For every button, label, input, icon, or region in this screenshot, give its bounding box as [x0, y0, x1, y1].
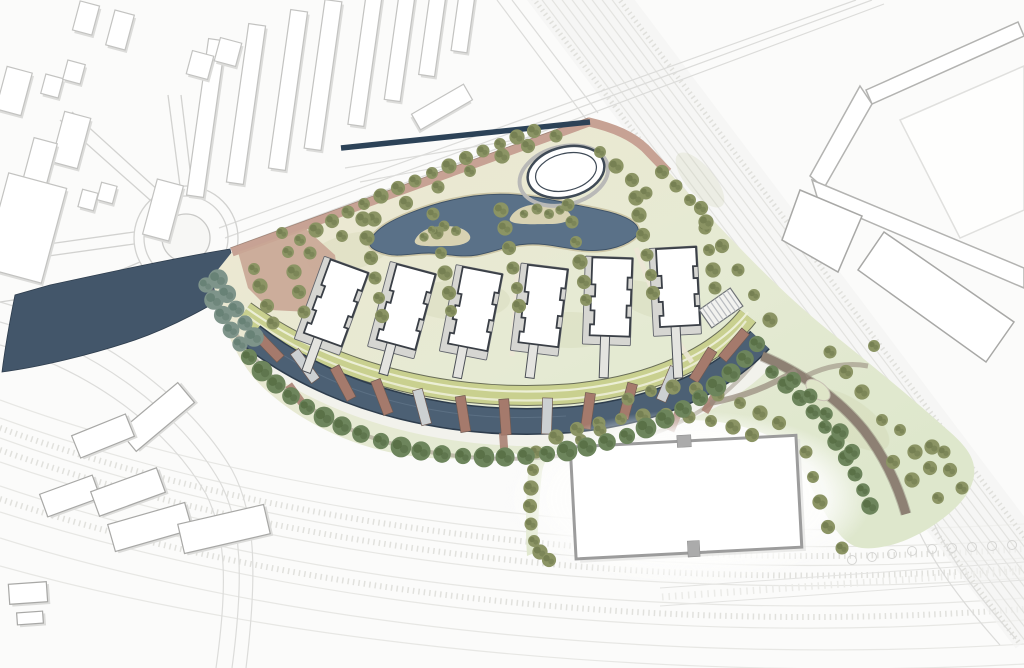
- tree-icon: [364, 251, 378, 265]
- tree-icon: [621, 392, 634, 405]
- tree-icon: [655, 165, 669, 179]
- canal-pier: [499, 399, 511, 436]
- tree-icon: [523, 499, 537, 513]
- tree-icon: [762, 312, 777, 327]
- tree-icon: [615, 413, 627, 425]
- tree-icon: [445, 305, 457, 317]
- tree-icon: [619, 428, 635, 444]
- tree-icon: [532, 204, 543, 215]
- tree-icon: [373, 433, 389, 449]
- tree-icon: [674, 400, 692, 418]
- tree-icon: [442, 286, 456, 300]
- tree-icon: [631, 207, 646, 222]
- warehouse-roof-notch: [677, 435, 692, 448]
- tree-icon: [821, 520, 835, 534]
- context-building: [268, 10, 307, 171]
- tree-icon: [373, 292, 385, 304]
- tree-icon: [502, 241, 516, 255]
- tree-icon: [749, 336, 765, 352]
- tree-icon: [336, 230, 348, 242]
- tree-icon: [252, 278, 267, 293]
- tree-icon: [408, 174, 421, 187]
- tree-icon: [512, 299, 526, 313]
- tree-icon: [228, 301, 245, 318]
- tree-icon: [923, 461, 937, 475]
- canal-pier: [541, 398, 552, 434]
- tree-icon: [241, 349, 257, 365]
- tree-icon: [772, 416, 786, 430]
- tree-icon: [861, 497, 878, 514]
- tree-icon: [359, 230, 374, 245]
- tree-icon: [645, 385, 657, 397]
- tree-icon: [266, 316, 279, 329]
- tree-icon: [636, 418, 657, 439]
- tree-icon: [807, 471, 819, 483]
- tree-icon: [419, 232, 428, 241]
- tree-icon: [435, 247, 447, 259]
- tree-icon: [248, 263, 260, 275]
- tree-icon: [441, 158, 456, 173]
- tree-icon: [694, 201, 708, 215]
- tree-icon: [955, 481, 968, 494]
- context-building: [120, 383, 195, 452]
- tree-icon: [308, 222, 323, 237]
- tree-icon: [517, 447, 535, 465]
- building-footprint: [656, 247, 700, 327]
- tree-icon: [665, 379, 680, 394]
- tree-icon: [373, 188, 388, 203]
- tree-icon: [493, 202, 508, 217]
- context-building: [304, 0, 342, 150]
- tree-icon: [812, 494, 827, 509]
- tree-icon: [924, 439, 939, 454]
- tree-icon: [904, 472, 919, 487]
- tree-icon: [352, 425, 370, 443]
- tree-icon: [943, 463, 957, 477]
- tree-icon: [752, 405, 767, 420]
- masterplan-canvas: [0, 0, 1024, 668]
- tree-icon: [818, 420, 832, 434]
- tree-icon: [636, 228, 650, 242]
- tree-icon: [831, 423, 848, 440]
- tree-icon: [282, 246, 294, 258]
- tree-icon: [799, 445, 812, 458]
- context-building: [0, 173, 67, 283]
- tree-icon: [577, 275, 591, 289]
- tree-icon: [886, 455, 900, 469]
- tree-icon: [932, 492, 944, 504]
- tree-icon: [368, 271, 381, 284]
- tree-icon: [497, 220, 512, 235]
- tree-icon: [276, 227, 288, 239]
- tree-icon: [854, 384, 869, 399]
- tree-icon: [856, 483, 870, 497]
- tree-icon: [594, 146, 606, 158]
- tree-icon: [282, 387, 300, 405]
- context-building: [8, 582, 47, 605]
- tree-icon: [765, 365, 779, 379]
- tree-icon: [806, 405, 821, 420]
- tree-icon: [580, 294, 592, 306]
- tree-icon: [549, 129, 562, 142]
- context-building: [51, 111, 91, 168]
- parking-tree-marker: [848, 556, 857, 565]
- tree-icon: [523, 480, 538, 495]
- tree-icon: [426, 167, 438, 179]
- tree-icon: [734, 397, 746, 409]
- tree-icon: [572, 254, 587, 269]
- tree-icon: [297, 305, 310, 318]
- building-stem: [599, 332, 610, 378]
- tree-icon: [325, 214, 339, 228]
- tree-icon: [527, 124, 541, 138]
- tree-icon: [705, 262, 720, 277]
- tree-icon: [358, 198, 370, 210]
- tree-icon: [428, 226, 437, 235]
- tree-icon: [451, 226, 461, 236]
- tree-icon: [244, 327, 264, 347]
- tree-icon: [341, 205, 354, 218]
- tree-icon: [223, 322, 240, 339]
- tree-icon: [692, 390, 708, 406]
- tree-icon: [292, 285, 306, 299]
- tree-icon: [426, 207, 439, 220]
- tree-icon: [411, 441, 430, 460]
- tree-icon: [294, 234, 306, 246]
- tree-icon: [474, 447, 495, 468]
- tree-icon: [459, 151, 473, 165]
- warehouse-roof-notch: [687, 540, 700, 557]
- tree-icon: [844, 444, 860, 460]
- tree-icon: [555, 205, 564, 214]
- tree-icon: [577, 437, 596, 456]
- tree-icon: [391, 181, 405, 195]
- tree-icon: [570, 422, 584, 436]
- tree-icon: [705, 415, 717, 427]
- tree-icon: [431, 180, 444, 193]
- tree-icon: [455, 448, 471, 464]
- tree-icon: [286, 264, 301, 279]
- tree-icon: [655, 409, 674, 428]
- tree-icon: [823, 345, 836, 358]
- tree-icon: [708, 281, 721, 294]
- tree-icon: [703, 244, 715, 256]
- tree-icon: [539, 446, 555, 462]
- tree-icon: [848, 467, 863, 482]
- tree-icon: [715, 239, 729, 253]
- tree-icon: [494, 138, 506, 150]
- tree-icon: [725, 419, 740, 434]
- tree-icon: [495, 447, 514, 466]
- building-footprint: [590, 257, 633, 336]
- tree-icon: [731, 263, 744, 276]
- context-building: [91, 468, 166, 516]
- tree-icon: [839, 365, 853, 379]
- tree-icon: [544, 209, 554, 219]
- context-building: [348, 0, 382, 126]
- context-building: [0, 66, 32, 115]
- tree-icon: [645, 269, 657, 281]
- tree-icon: [876, 414, 888, 426]
- tree-icon: [355, 211, 370, 226]
- tree-icon: [437, 265, 452, 280]
- tree-icon: [625, 173, 639, 187]
- context-building: [384, 0, 415, 102]
- tree-icon: [684, 194, 696, 206]
- tree-icon: [520, 210, 529, 219]
- tree-icon: [894, 424, 906, 436]
- tree-icon: [698, 214, 713, 229]
- tree-icon: [521, 139, 535, 153]
- tree-icon: [785, 372, 801, 388]
- tree-icon: [570, 236, 582, 248]
- tree-icon: [439, 221, 450, 232]
- tree-icon: [608, 158, 623, 173]
- tree-icon: [303, 246, 316, 259]
- tree-icon: [736, 350, 754, 368]
- tree-icon: [399, 196, 413, 210]
- site-plan-drawing: [0, 0, 1024, 668]
- tree-icon: [524, 517, 537, 530]
- tree-icon: [464, 165, 476, 177]
- tree-icon: [260, 299, 274, 313]
- context-building: [419, 0, 448, 77]
- tree-icon: [819, 407, 833, 421]
- tree-icon: [803, 389, 818, 404]
- tree-icon: [433, 445, 451, 463]
- tree-icon: [332, 416, 351, 435]
- tree-icon: [640, 248, 653, 261]
- tree-icon: [542, 553, 556, 567]
- tree-icon: [745, 428, 759, 442]
- tree-icon: [598, 433, 616, 451]
- tree-icon: [314, 407, 335, 428]
- tree-icon: [299, 399, 315, 415]
- tree-icon: [721, 363, 740, 382]
- tree-icon: [748, 289, 760, 301]
- tree-icon: [506, 261, 519, 274]
- tree-icon: [669, 179, 682, 192]
- tree-icon: [476, 144, 489, 157]
- parking-tree-marker: [908, 547, 917, 556]
- tree-icon: [628, 190, 643, 205]
- tree-icon: [391, 437, 412, 458]
- tree-icon: [868, 340, 880, 352]
- tree-icon: [511, 282, 523, 294]
- tree-icon: [706, 376, 727, 397]
- tree-icon: [565, 215, 578, 228]
- tree-icon: [646, 286, 660, 300]
- tree-icon: [835, 541, 848, 554]
- tree-icon: [527, 464, 539, 476]
- tree-icon: [266, 374, 285, 393]
- tree-icon: [494, 148, 509, 163]
- context-building: [106, 10, 135, 50]
- tree-icon: [557, 441, 578, 462]
- tree-icon: [907, 444, 922, 459]
- tree-icon: [218, 285, 236, 303]
- tree-icon: [375, 309, 389, 323]
- context-building: [17, 611, 44, 625]
